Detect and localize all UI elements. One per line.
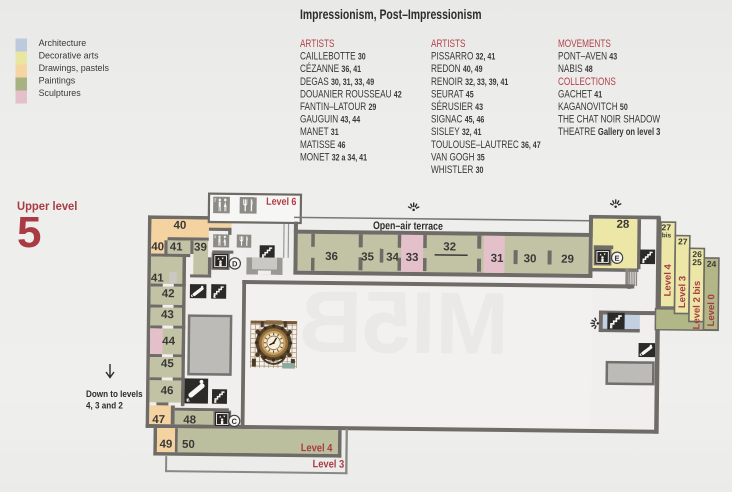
svg-text:41: 41 xyxy=(170,241,184,253)
svg-text:CAILLEBOTTE 30: CAILLEBOTTE 30 xyxy=(300,51,366,63)
svg-text:50: 50 xyxy=(182,439,195,451)
svg-text:Level 3: Level 3 xyxy=(677,276,688,308)
svg-text:FANTIN–LATOUR 29: FANTIN–LATOUR 29 xyxy=(300,101,377,113)
svg-text:THE CHAT NOIR SHADOW: THE CHAT NOIR SHADOW xyxy=(558,114,660,126)
svg-text:Decorative arts: Decorative arts xyxy=(39,50,99,60)
svg-text:THEATRE Gallery on level 3: THEATRE Gallery on level 3 xyxy=(558,126,660,138)
svg-text:bis: bis xyxy=(662,232,672,239)
svg-text:Architecture: Architecture xyxy=(39,38,87,48)
svg-text:C: C xyxy=(231,417,237,426)
svg-text:46: 46 xyxy=(161,385,174,397)
svg-text:39: 39 xyxy=(194,242,207,254)
svg-text:Level 0: Level 0 xyxy=(706,294,717,326)
svg-text:33: 33 xyxy=(406,252,419,264)
svg-text:Level 6: Level 6 xyxy=(266,196,297,208)
svg-text:CÉZANNE 36, 41: CÉZANNE 36, 41 xyxy=(300,63,361,75)
svg-text:WHISTLER 30: WHISTLER 30 xyxy=(431,164,484,176)
svg-text:RENOIR 32, 33, 39, 41: RENOIR 32, 33, 39, 41 xyxy=(431,76,509,88)
svg-text:27: 27 xyxy=(661,222,671,232)
svg-text:48: 48 xyxy=(183,414,197,426)
svg-text:32: 32 xyxy=(443,241,456,253)
svg-text:47: 47 xyxy=(152,414,165,426)
svg-text:DEGAS 30, 31, 33, 49: DEGAS 30, 31, 33, 49 xyxy=(300,76,375,88)
svg-text:4, 3 and 2: 4, 3 and 2 xyxy=(86,400,123,411)
svg-text:PONT–AVEN 43: PONT–AVEN 43 xyxy=(558,51,618,63)
svg-text:ARTISTS: ARTISTS xyxy=(431,38,465,50)
svg-text:43: 43 xyxy=(161,309,174,321)
svg-text:45: 45 xyxy=(161,358,175,370)
svg-text:42: 42 xyxy=(162,288,175,300)
svg-text:COLLECTIONS: COLLECTIONS xyxy=(558,76,616,88)
svg-text:MI5B: MI5B xyxy=(298,272,509,373)
svg-text:NABIS 48: NABIS 48 xyxy=(558,63,593,75)
svg-text:31: 31 xyxy=(491,253,505,265)
svg-text:SEURAT 45: SEURAT 45 xyxy=(431,88,474,100)
svg-text:Sculptures: Sculptures xyxy=(39,88,82,98)
svg-text:D: D xyxy=(232,259,238,268)
svg-text:24: 24 xyxy=(707,259,717,269)
svg-text:28: 28 xyxy=(617,219,631,231)
svg-text:MATISSE 46: MATISSE 46 xyxy=(300,139,346,151)
svg-text:27: 27 xyxy=(678,236,688,246)
svg-text:MOVEMENTS: MOVEMENTS xyxy=(558,38,611,50)
svg-text:49: 49 xyxy=(159,439,172,451)
svg-text:Drawings, pastels: Drawings, pastels xyxy=(39,63,110,73)
svg-text:Paintings: Paintings xyxy=(39,75,76,85)
svg-text:Level 4: Level 4 xyxy=(662,263,673,296)
svg-text:40: 40 xyxy=(173,220,186,232)
svg-text:30: 30 xyxy=(524,253,537,265)
svg-text:KAGANOVITCH 50: KAGANOVITCH 50 xyxy=(558,101,628,113)
svg-text:MANET 31: MANET 31 xyxy=(300,126,339,138)
svg-text:GAUGUIN 43, 44: GAUGUIN 43, 44 xyxy=(300,114,361,126)
svg-text:REDON 40, 49: REDON 40, 49 xyxy=(431,63,483,75)
svg-text:TOULOUSE–LAUTREC 36, 47: TOULOUSE–LAUTREC 36, 47 xyxy=(431,139,541,151)
svg-text:40: 40 xyxy=(151,241,164,253)
svg-text:SÉRUSIER 43: SÉRUSIER 43 xyxy=(431,101,483,113)
svg-text:Impressionism, Post–Impression: Impressionism, Post–Impressionism xyxy=(300,7,482,23)
svg-text:Down to levels: Down to levels xyxy=(86,389,143,400)
svg-text:PISSARRO 32, 41: PISSARRO 32, 41 xyxy=(431,51,496,63)
svg-text:SIGNAC 45, 46: SIGNAC 45, 46 xyxy=(431,114,485,126)
svg-text:VAN GOGH 35: VAN GOGH 35 xyxy=(431,151,485,163)
svg-text:E: E xyxy=(615,254,620,263)
svg-text:35: 35 xyxy=(361,251,375,263)
svg-text:SISLEY 32, 41: SISLEY 32, 41 xyxy=(431,126,482,138)
svg-text:44: 44 xyxy=(162,336,176,348)
svg-text:41: 41 xyxy=(151,272,165,284)
svg-text:25: 25 xyxy=(692,257,702,267)
svg-text:MONET 32 a 34, 41: MONET 32 a 34, 41 xyxy=(300,151,367,163)
svg-text:GACHET 41: GACHET 41 xyxy=(558,88,602,100)
svg-text:29: 29 xyxy=(561,254,574,266)
svg-text:Level 2 bis: Level 2 bis xyxy=(691,281,703,330)
svg-text:ARTISTS: ARTISTS xyxy=(300,38,334,50)
svg-text:Level 4: Level 4 xyxy=(301,443,333,455)
svg-text:5: 5 xyxy=(17,208,41,257)
svg-text:36: 36 xyxy=(325,251,338,263)
svg-text:DOUANIER ROUSSEAU 42: DOUANIER ROUSSEAU 42 xyxy=(300,88,402,100)
svg-text:Level 3: Level 3 xyxy=(312,459,344,471)
